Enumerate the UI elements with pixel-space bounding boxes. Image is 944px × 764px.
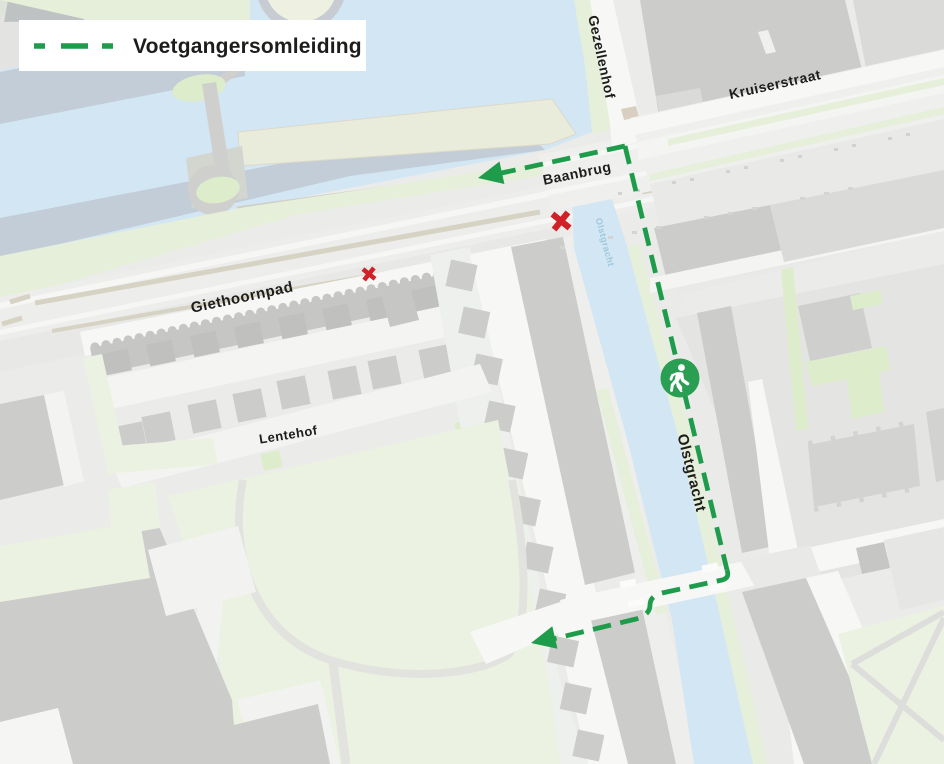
svg-text:Voetgangersomleiding: Voetgangersomleiding	[133, 35, 362, 58]
